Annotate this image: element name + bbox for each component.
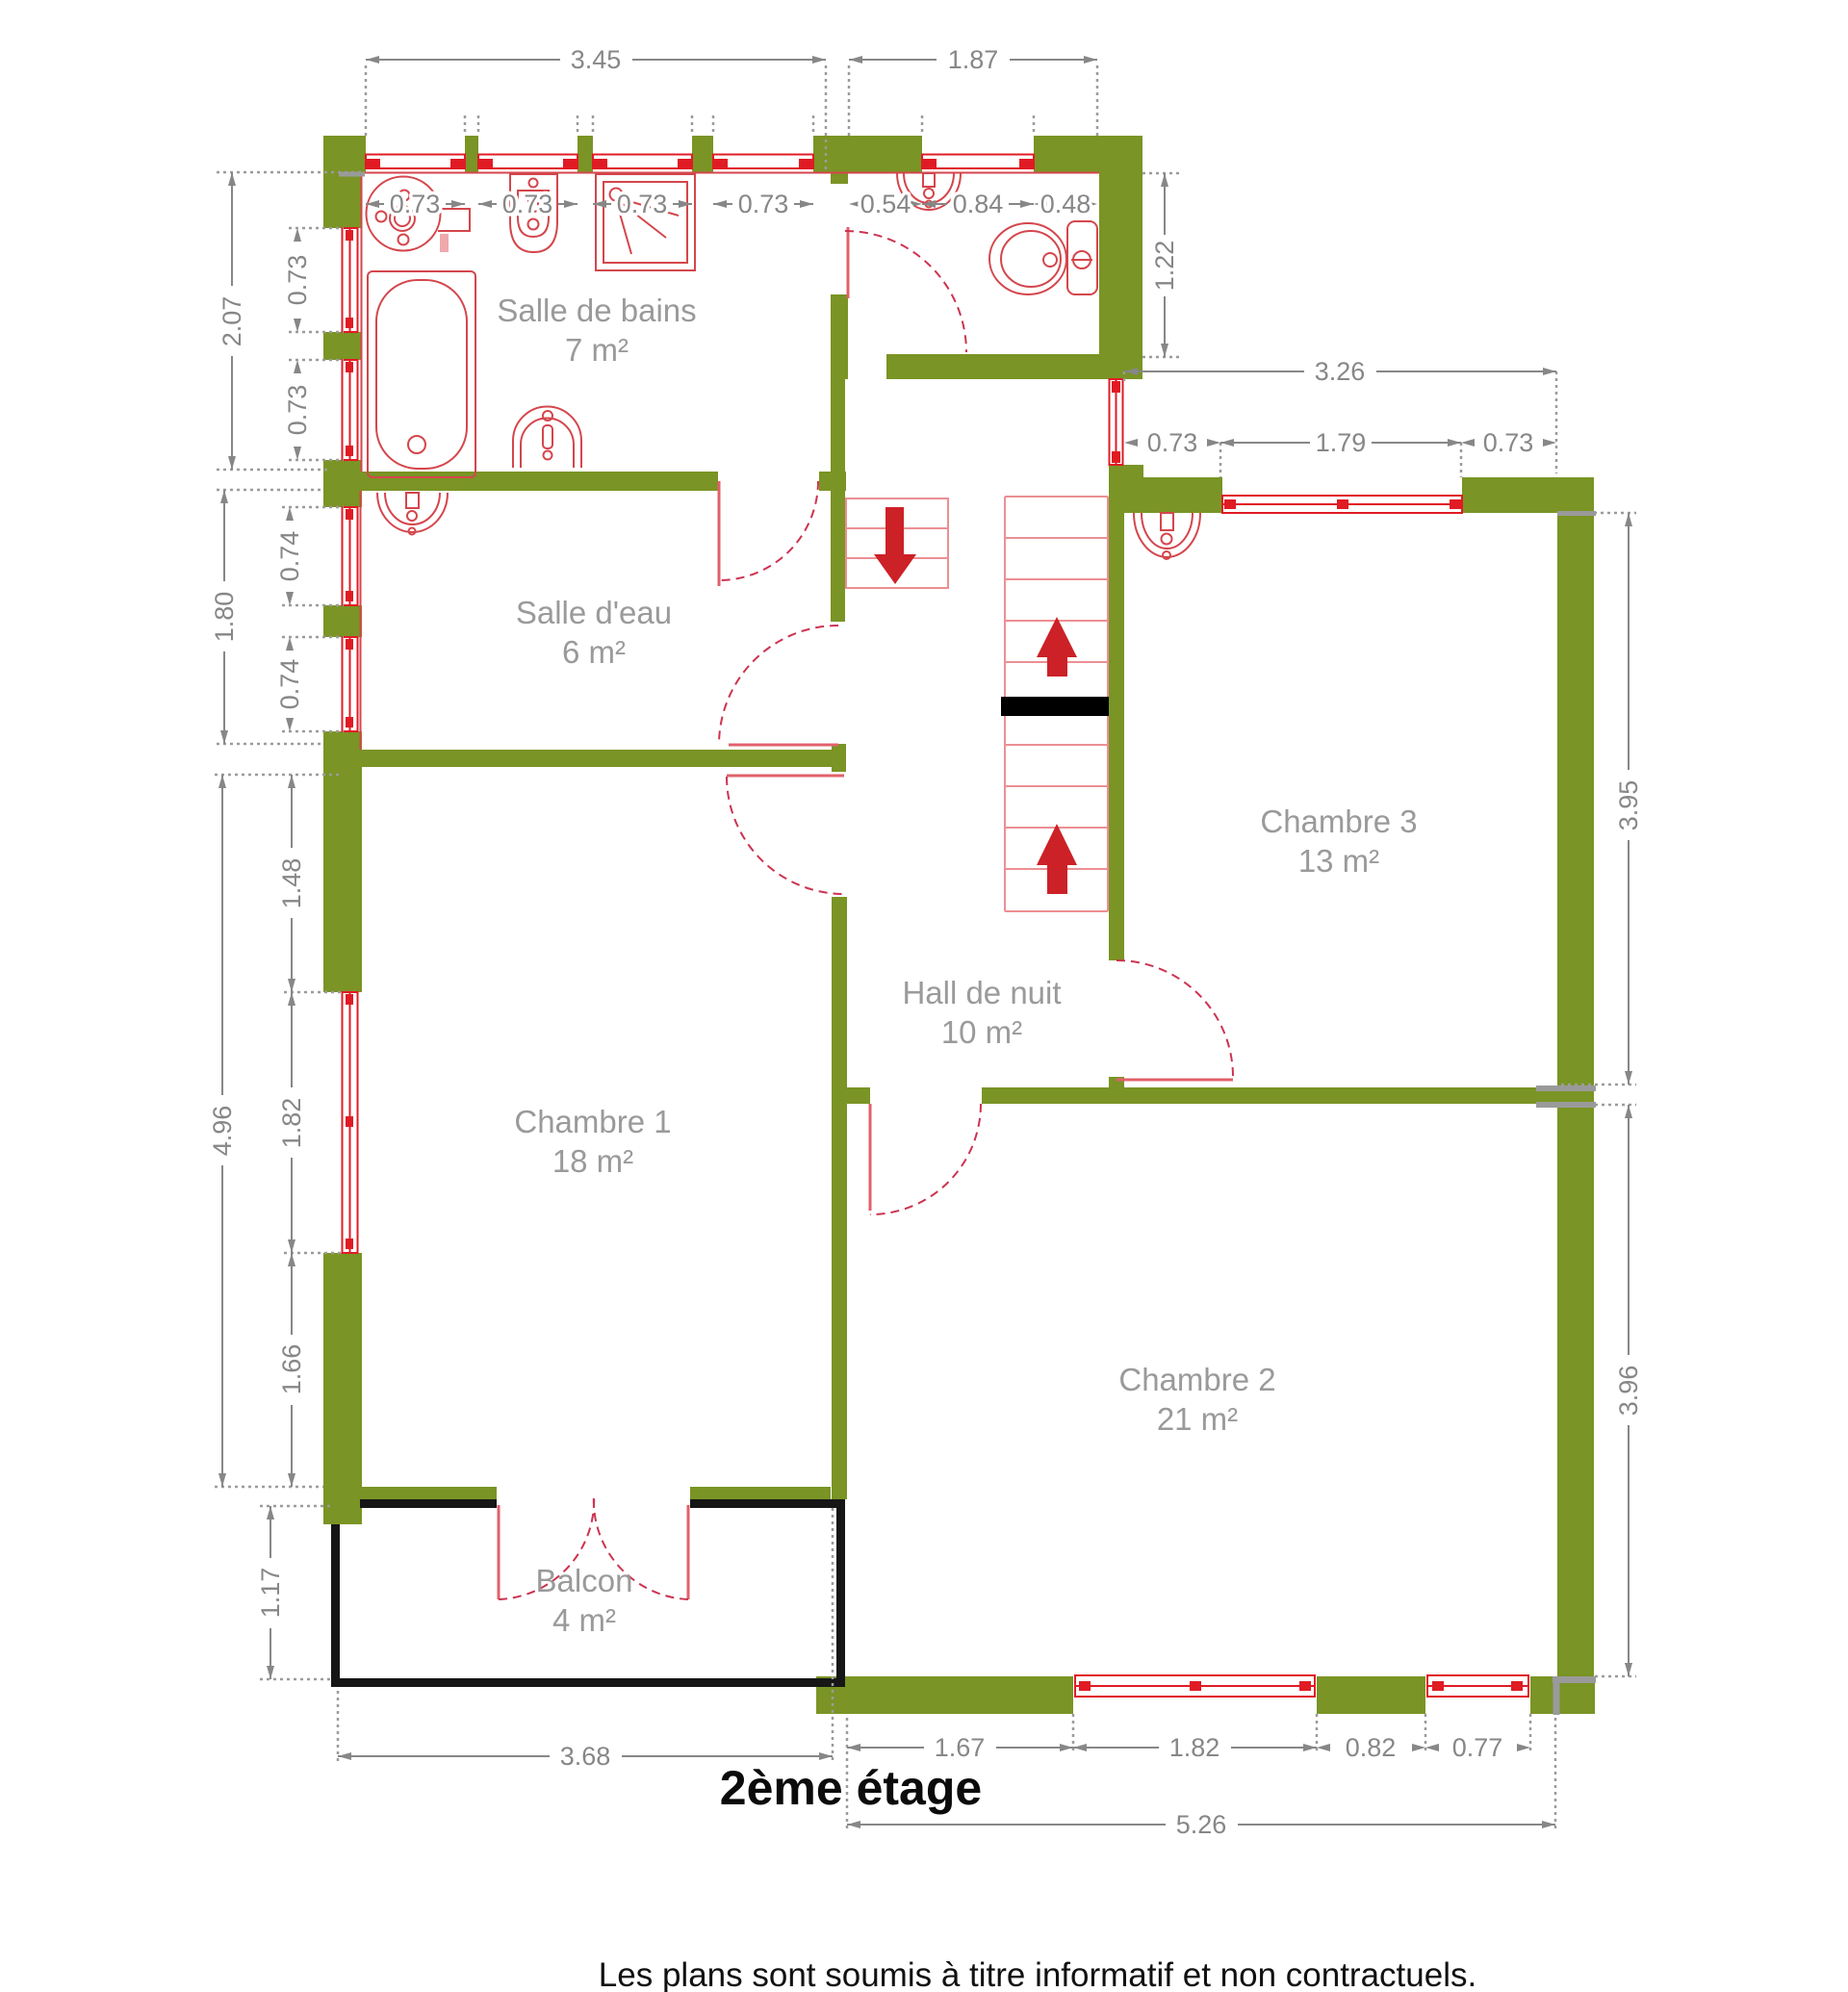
- svg-text:1.66: 1.66: [277, 1344, 306, 1395]
- svg-text:Chambre 3: Chambre 3: [1260, 804, 1417, 839]
- svg-text:10 m²: 10 m²: [941, 1014, 1022, 1050]
- svg-text:2ème étage: 2ème étage: [720, 1761, 982, 1815]
- svg-text:1.48: 1.48: [277, 858, 306, 909]
- svg-text:0.73: 0.73: [617, 190, 668, 218]
- svg-text:0.77: 0.77: [1452, 1733, 1503, 1762]
- svg-text:0.73: 0.73: [1147, 428, 1198, 457]
- svg-text:2.07: 2.07: [218, 296, 246, 347]
- svg-text:1.79: 1.79: [1316, 428, 1367, 457]
- svg-text:13 m²: 13 m²: [1298, 843, 1379, 879]
- svg-text:Salle d'eau: Salle d'eau: [516, 595, 672, 630]
- svg-text:1.22: 1.22: [1150, 241, 1179, 292]
- svg-text:1.82: 1.82: [277, 1098, 306, 1149]
- svg-text:0.82: 0.82: [1346, 1733, 1397, 1762]
- svg-text:0.73: 0.73: [283, 385, 312, 436]
- svg-text:0.73: 0.73: [283, 255, 312, 306]
- svg-text:0.84: 0.84: [953, 190, 1004, 218]
- svg-text:21 m²: 21 m²: [1157, 1401, 1238, 1437]
- svg-text:3.96: 3.96: [1614, 1366, 1643, 1417]
- svg-text:0.73: 0.73: [502, 190, 553, 218]
- svg-text:0.74: 0.74: [275, 531, 304, 582]
- svg-text:3.95: 3.95: [1614, 780, 1643, 831]
- svg-text:1.67: 1.67: [935, 1733, 986, 1762]
- svg-text:3.45: 3.45: [571, 45, 622, 74]
- svg-text:0.73: 0.73: [1483, 428, 1534, 457]
- svg-text:4 m²: 4 m²: [552, 1602, 616, 1638]
- svg-text:0.73: 0.73: [390, 190, 441, 218]
- svg-text:7 m²: 7 m²: [565, 332, 629, 368]
- svg-text:0.73: 0.73: [738, 190, 789, 218]
- svg-text:Les plans sont soumis à titre: Les plans sont soumis à titre informatif…: [599, 1956, 1476, 1992]
- svg-text:0.54: 0.54: [860, 190, 911, 218]
- svg-text:Balcon: Balcon: [536, 1563, 633, 1598]
- svg-text:Salle de bains: Salle de bains: [497, 293, 696, 328]
- svg-text:3.26: 3.26: [1315, 357, 1366, 386]
- svg-text:6 m²: 6 m²: [562, 634, 626, 670]
- svg-text:1.17: 1.17: [256, 1568, 285, 1619]
- svg-text:4.96: 4.96: [208, 1106, 237, 1157]
- svg-text:1.80: 1.80: [210, 592, 239, 643]
- svg-text:0.48: 0.48: [1040, 190, 1091, 218]
- svg-text:3.68: 3.68: [560, 1742, 611, 1771]
- svg-text:Chambre 1: Chambre 1: [514, 1104, 671, 1139]
- svg-text:18 m²: 18 m²: [552, 1143, 633, 1179]
- svg-text:Chambre 2: Chambre 2: [1118, 1362, 1275, 1397]
- svg-text:Hall de nuit: Hall de nuit: [902, 975, 1061, 1010]
- svg-text:1.87: 1.87: [948, 45, 999, 74]
- svg-text:1.82: 1.82: [1169, 1733, 1220, 1762]
- svg-text:5.26: 5.26: [1176, 1810, 1227, 1839]
- svg-text:0.74: 0.74: [275, 659, 304, 710]
